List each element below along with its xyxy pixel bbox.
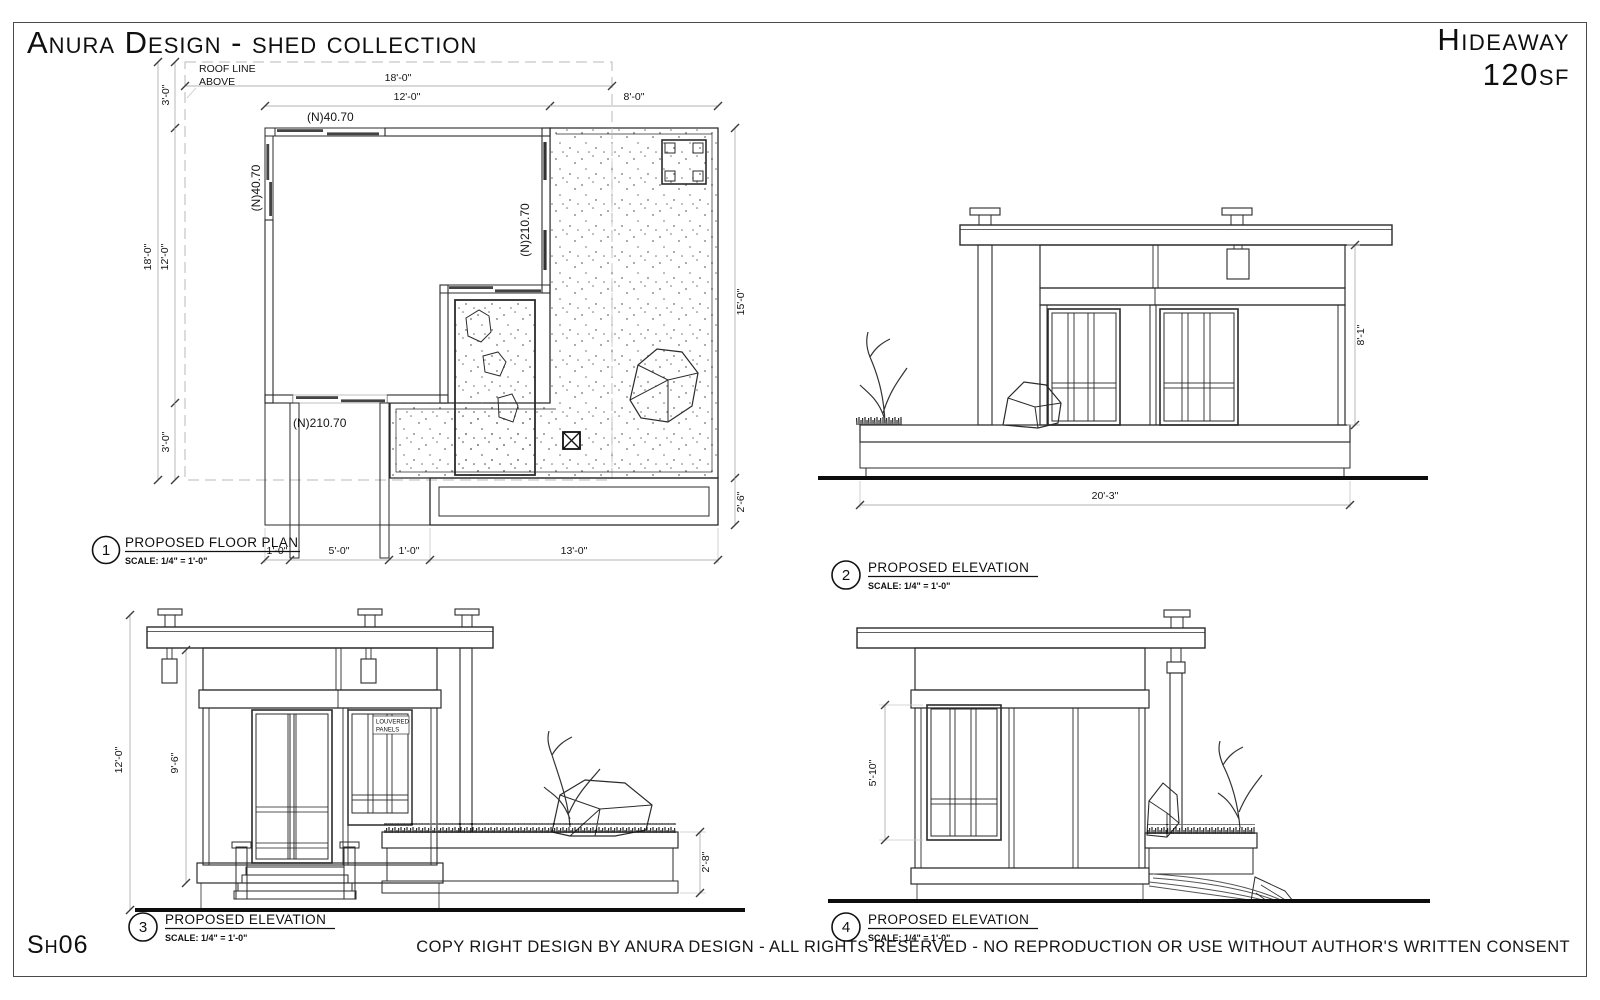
louvered-panels-note-line1: LOUVERED bbox=[376, 720, 410, 726]
wall-label-bottom: (N)210.70 bbox=[293, 416, 347, 430]
pendant-stem bbox=[167, 648, 172, 659]
model-area: 120sf bbox=[1437, 58, 1570, 93]
e2-porch-post bbox=[978, 245, 992, 425]
dim-e3-wall-height: 9'-6" bbox=[169, 752, 181, 773]
floor-plan-drawing: 18'-0" 12'-0" 8'-0" 3'-0" 18'-0" 12'-0" … bbox=[85, 50, 775, 595]
view-number: 3 bbox=[139, 919, 147, 936]
dim-roof-depth: 18'-0" bbox=[142, 243, 154, 270]
e2-window-right bbox=[1160, 309, 1238, 425]
roof-cap-left bbox=[970, 208, 1000, 215]
e3-steps bbox=[232, 842, 359, 899]
e3-porch-post bbox=[460, 648, 472, 832]
pendant-light bbox=[361, 659, 376, 683]
roof-cap-right bbox=[1222, 208, 1252, 215]
dim-roof-overhang-top: 3'-0" bbox=[160, 84, 172, 105]
roof-note-line1: ROOF LINE bbox=[199, 63, 256, 75]
elevation4-drawing: 5'-10" 4 PROPOSED ELEVATION SCALE: 1/4" … bbox=[815, 595, 1475, 955]
flue-pipe bbox=[1170, 673, 1182, 833]
dim-e3-height: 12'-0" bbox=[113, 746, 125, 773]
e2-deck bbox=[860, 425, 1350, 478]
dim-deck-front: 13'-0" bbox=[561, 545, 588, 557]
view-number: 1 bbox=[102, 542, 110, 559]
grass bbox=[384, 823, 676, 833]
dim-room-depth: 12'-0" bbox=[159, 243, 171, 270]
curved-ramp bbox=[1149, 874, 1283, 901]
e4-building bbox=[911, 648, 1149, 901]
e4-titleblock: 4 PROPOSED ELEVATION SCALE: 1/4" = 1'-0" bbox=[832, 912, 1038, 943]
dim-roof-width: 18'-0" bbox=[385, 72, 412, 84]
dim-roof-overhang-bottom: 3'-0" bbox=[160, 431, 172, 452]
e2-roof bbox=[960, 208, 1392, 279]
louvered-panels-note-line2: PANELS bbox=[376, 728, 399, 734]
dim-deck-depth: 15'-0" bbox=[735, 288, 747, 315]
dim-planter-depth: 2'-6" bbox=[735, 491, 747, 512]
dim-room-width: 12'-0" bbox=[394, 91, 421, 103]
model-name: Hideaway bbox=[1437, 23, 1570, 58]
dim-walk-width: 5'-0" bbox=[329, 545, 350, 557]
e4-tree bbox=[1218, 741, 1262, 828]
e2-plant bbox=[856, 332, 907, 425]
view-scale: SCALE: 1/4" = 1'-0" bbox=[125, 556, 207, 566]
e2-window-left bbox=[1048, 309, 1120, 425]
view-title: PROPOSED ELEVATION bbox=[165, 912, 326, 927]
e3-tree bbox=[544, 731, 600, 827]
e2-titleblock: 2 PROPOSED ELEVATION SCALE: 1/4" = 1'-0" bbox=[832, 560, 1038, 591]
view-number: 4 bbox=[842, 919, 850, 936]
view-title: PROPOSED ELEVATION bbox=[868, 912, 1029, 927]
view-scale: SCALE: 1/4" = 1'-0" bbox=[868, 933, 950, 943]
view-scale: SCALE: 1/4" = 1'-0" bbox=[165, 933, 247, 943]
elevation3-drawing: LOUVERED PANELS 12'-0" 9'-6" bbox=[100, 595, 760, 955]
e2-dimensions: 8'-1" 20'-3" bbox=[856, 241, 1367, 509]
dim-deck-width: 8'-0" bbox=[624, 91, 645, 103]
dim-e2-width: 20'-3" bbox=[1092, 490, 1119, 502]
e4-window bbox=[927, 705, 1001, 840]
wall-label-right: (N)210.70 bbox=[518, 203, 532, 257]
rock-garden-bed bbox=[455, 300, 535, 475]
e2-building bbox=[1040, 245, 1345, 425]
elevation2-drawing: 8'-1" 20'-3" 2 PROPOSED ELEVATION SCALE:… bbox=[810, 185, 1450, 615]
e3-titleblock: 3 PROPOSED ELEVATION SCALE: 1/4" = 1'-0" bbox=[129, 912, 335, 943]
wall-label-left: (N)40.70 bbox=[249, 164, 263, 211]
view-title: PROPOSED FLOOR PLAN bbox=[125, 535, 298, 550]
e3-building bbox=[197, 648, 443, 910]
pendant-light bbox=[162, 659, 177, 683]
wall-label-top: (N)40.70 bbox=[307, 110, 354, 124]
ramp-wedge bbox=[1251, 877, 1293, 901]
model-block: Hideaway 120sf bbox=[1437, 23, 1570, 92]
flue-box bbox=[1227, 249, 1249, 279]
dim-e3-planter-height: 2'-8" bbox=[700, 851, 712, 872]
roof-note-line2: ABOVE bbox=[199, 76, 235, 88]
e3-window: LOUVERED PANELS bbox=[348, 710, 412, 825]
planter bbox=[430, 478, 718, 525]
e4-roof bbox=[857, 610, 1205, 833]
view-scale: SCALE: 1/4" = 1'-0" bbox=[868, 581, 950, 591]
e3-door bbox=[252, 710, 332, 863]
view-title: PROPOSED ELEVATION bbox=[868, 560, 1029, 575]
sheet-number: Sh06 bbox=[27, 931, 88, 960]
pendant-stem bbox=[366, 648, 371, 659]
dim-e4-window-height: 5'-10" bbox=[867, 759, 879, 786]
e3-roof bbox=[147, 609, 493, 832]
view-number: 2 bbox=[842, 567, 850, 584]
grass bbox=[1147, 824, 1255, 834]
dim-walk-right: 1'-0" bbox=[399, 545, 420, 557]
x-box-symbol bbox=[563, 432, 580, 449]
dim-e2-height: 8'-1" bbox=[1355, 324, 1367, 345]
